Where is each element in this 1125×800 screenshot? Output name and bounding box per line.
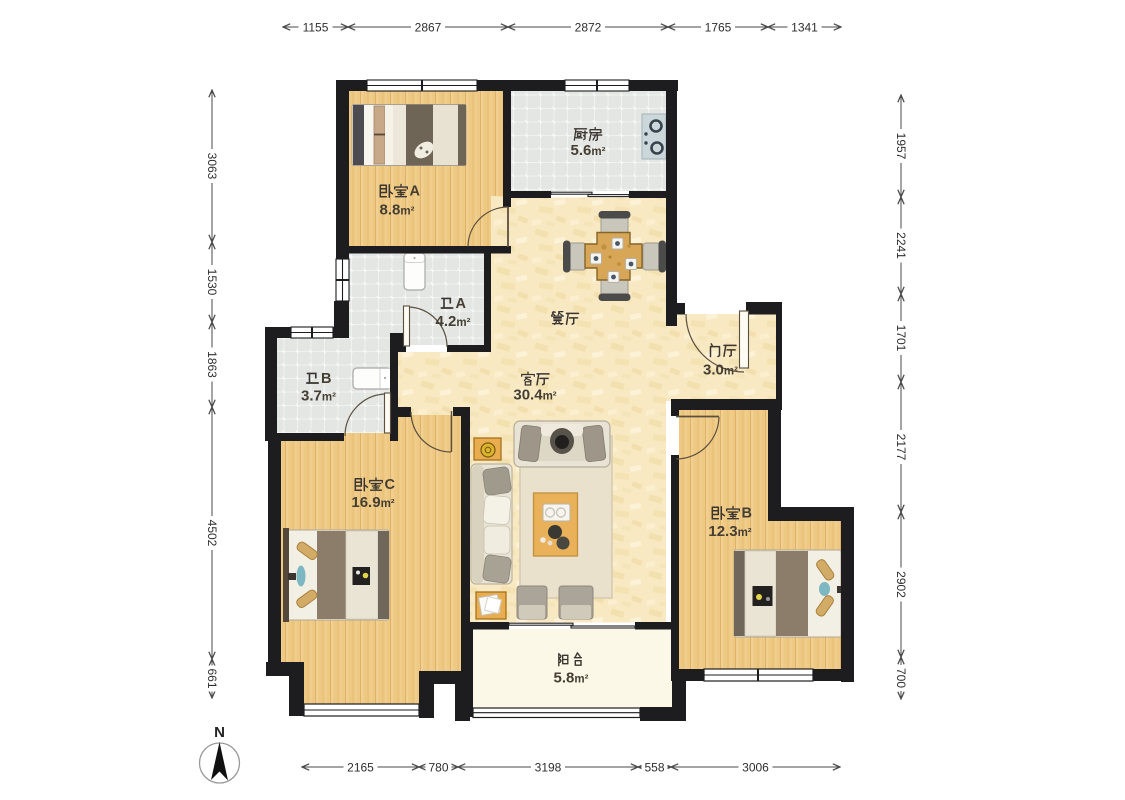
svg-text:A: A (410, 184, 421, 200)
svg-text:2177: 2177 (894, 434, 908, 461)
svg-text:2902: 2902 (894, 571, 908, 598)
svg-text:558: 558 (644, 761, 664, 775)
svg-text:780: 780 (428, 761, 448, 775)
svg-text:1957: 1957 (894, 133, 908, 160)
svg-text:700: 700 (894, 668, 908, 688)
svg-text:661: 661 (205, 668, 219, 688)
svg-text:N: N (214, 724, 225, 741)
svg-text:1341: 1341 (791, 21, 818, 35)
svg-text:B: B (742, 506, 752, 522)
svg-text:A: A (456, 296, 467, 312)
svg-text:3006: 3006 (742, 761, 769, 775)
svg-text:3198: 3198 (535, 761, 562, 775)
svg-text:1530: 1530 (205, 269, 219, 296)
svg-text:B: B (321, 371, 331, 387)
svg-text:1765: 1765 (705, 21, 732, 35)
svg-text:2165: 2165 (347, 761, 374, 775)
svg-text:1863: 1863 (205, 351, 219, 378)
svg-text:2872: 2872 (575, 21, 602, 35)
svg-text:2867: 2867 (415, 21, 442, 35)
svg-text:C: C (385, 477, 396, 493)
svg-text:4502: 4502 (205, 520, 219, 547)
svg-text:1701: 1701 (894, 325, 908, 352)
svg-text:3063: 3063 (205, 153, 219, 180)
svg-text:2241: 2241 (894, 232, 908, 259)
svg-text:1155: 1155 (303, 21, 329, 35)
